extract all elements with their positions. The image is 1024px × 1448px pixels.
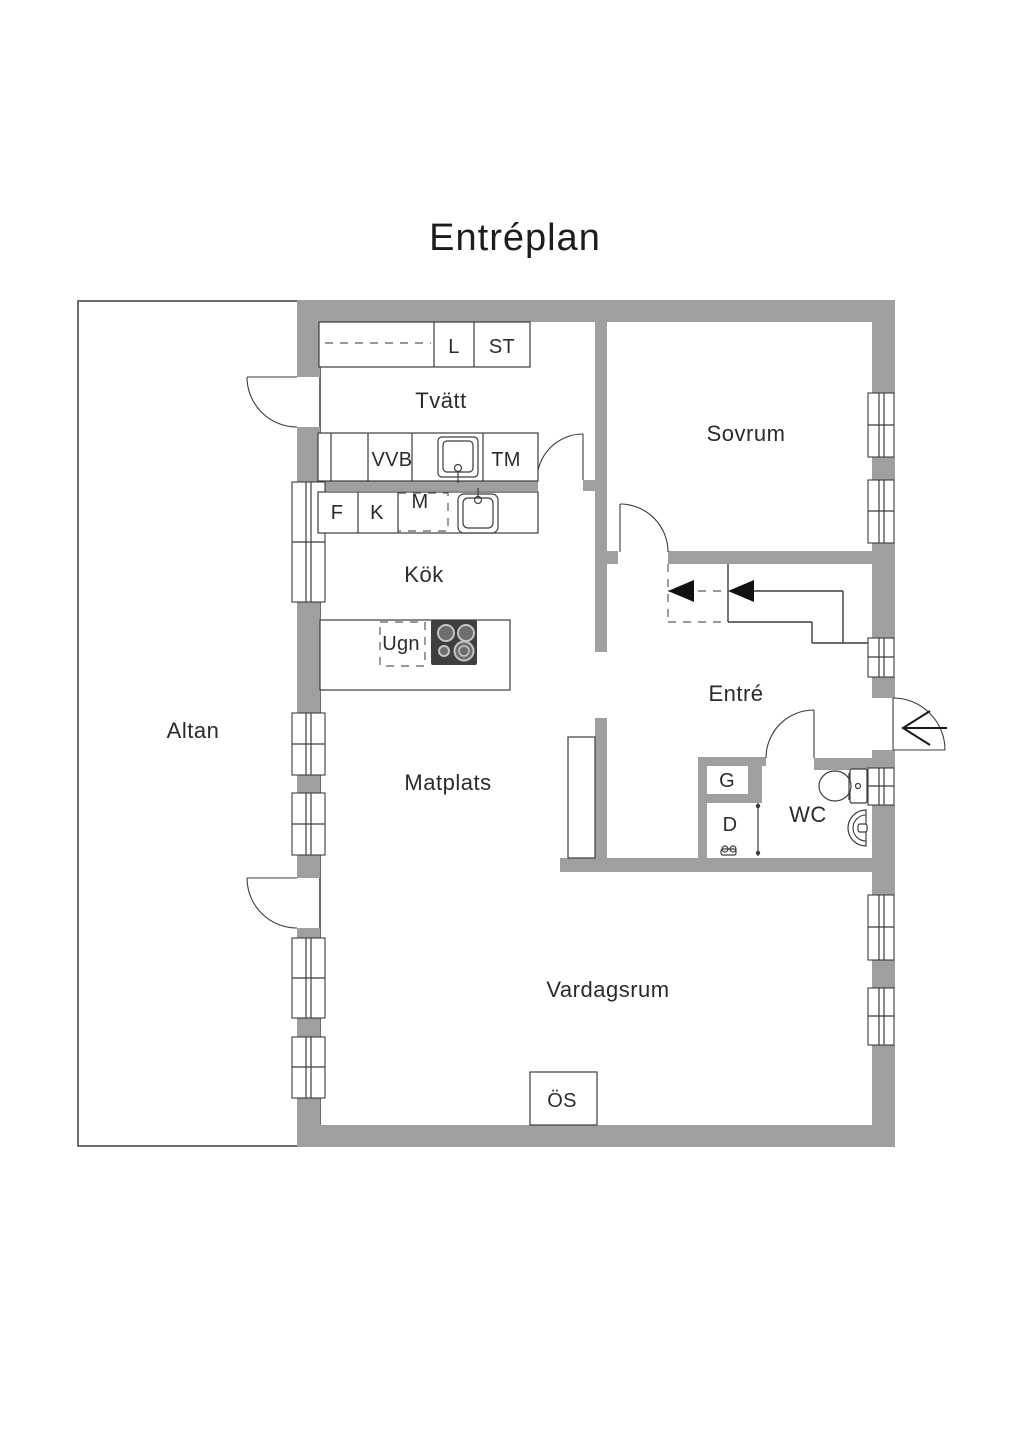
door-swing <box>766 710 814 758</box>
wall-segment <box>872 543 895 638</box>
label-g: G <box>719 770 735 792</box>
wall-segment <box>297 855 320 878</box>
window <box>868 895 894 960</box>
wall-segment <box>814 758 873 770</box>
window <box>292 793 325 855</box>
label-m: M <box>412 491 429 513</box>
label-k: K <box>370 502 384 524</box>
label-d: D <box>723 814 738 836</box>
entrance-door <box>893 698 947 750</box>
wall-segment <box>297 1018 320 1037</box>
label-tm: TM <box>491 449 520 471</box>
page-title: Entréplan <box>429 217 601 259</box>
window <box>868 480 894 543</box>
laundry-sink <box>438 437 478 483</box>
wall-segment <box>297 1125 895 1147</box>
wall-segment <box>297 427 320 482</box>
door-swing <box>620 504 668 552</box>
label-os: ÖS <box>547 1090 577 1112</box>
floorplan-page: Entréplan <box>0 0 1024 1448</box>
window <box>868 638 894 677</box>
wall-segment <box>748 757 762 803</box>
room-label-entre: Entré <box>708 681 763 706</box>
room-label-tvatt: Tvätt <box>415 388 466 413</box>
window <box>292 938 325 1018</box>
wall-segment <box>872 322 895 393</box>
stair-direction-arrow-icon <box>728 580 754 602</box>
label-vvb: VVB <box>372 449 413 471</box>
room-label-sovrum: Sovrum <box>707 421 786 446</box>
wall-segment <box>872 1045 895 1130</box>
wall-segment <box>668 551 873 564</box>
wall-segment <box>595 551 618 564</box>
kitchen-island <box>320 620 510 690</box>
room-label-matplats: Matplats <box>404 770 491 795</box>
wall-segment <box>698 757 707 858</box>
label-f: F <box>331 502 344 524</box>
wall-segment <box>872 750 895 768</box>
wall-segment <box>872 457 895 480</box>
kitchen-sink <box>458 488 498 533</box>
door-swing <box>537 434 583 480</box>
floorplan-drawing: Entréplan <box>0 0 1024 1448</box>
room-label-kok: Kök <box>404 562 444 587</box>
stove <box>431 620 477 665</box>
wall-segment <box>583 480 607 491</box>
wall-segment <box>595 718 607 863</box>
toilet <box>819 769 867 803</box>
wall-segment <box>297 322 320 377</box>
room-label-vardagsrum: Vardagsrum <box>546 977 669 1002</box>
shower-mixer <box>721 846 736 855</box>
window <box>292 713 325 775</box>
wash-basin <box>848 810 867 846</box>
wall-segment <box>318 480 538 491</box>
wall-segment <box>872 960 895 988</box>
window <box>868 393 894 457</box>
entry-arrow-icon <box>903 711 947 745</box>
wall-segment <box>297 928 320 938</box>
shower-screen <box>756 803 760 856</box>
wall-segment <box>297 1098 320 1130</box>
stair-direction-arrow-icon <box>668 580 694 602</box>
window <box>868 768 894 805</box>
window <box>292 1037 325 1098</box>
wall-segment <box>297 300 895 322</box>
wall-segment <box>297 602 320 713</box>
wall-segment <box>297 775 320 793</box>
stairs <box>668 564 868 643</box>
label-st: ST <box>489 336 515 358</box>
window <box>868 988 894 1045</box>
wall-segment <box>872 805 895 895</box>
label-ugn: Ugn <box>382 633 420 655</box>
wall-segment <box>872 677 895 698</box>
kitchen-fittings <box>318 488 538 690</box>
wardrobe <box>568 737 595 858</box>
wall-segment <box>560 858 873 872</box>
room-label-altan: Altan <box>167 718 220 743</box>
label-l: L <box>448 336 459 358</box>
room-label-wc: WC <box>789 802 827 827</box>
